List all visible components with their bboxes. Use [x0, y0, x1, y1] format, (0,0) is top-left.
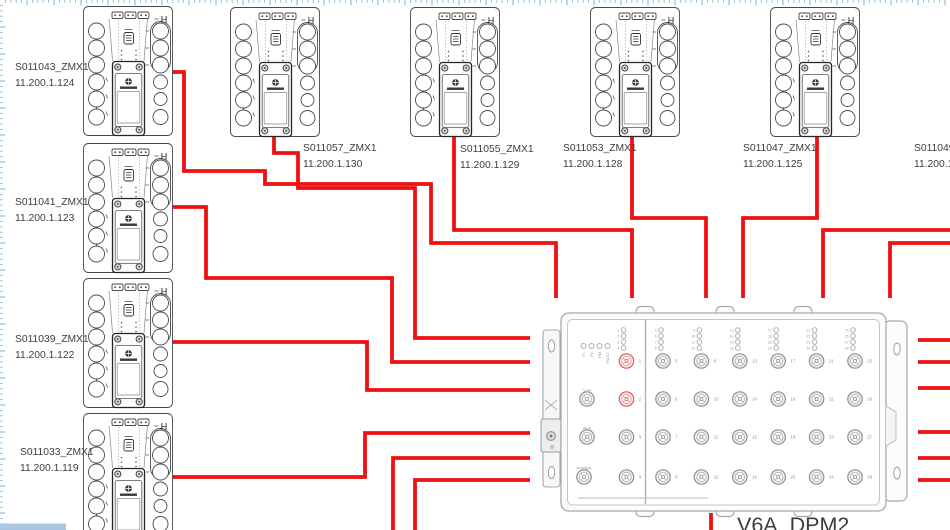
svg-text:24: 24 — [806, 346, 810, 350]
svg-text:15: 15 — [752, 435, 757, 440]
label-s011053-name[interactable]: S011053_ZMX1 — [563, 143, 637, 154]
svg-text:FAULT: FAULT — [606, 351, 610, 363]
svg-text:12: 12 — [714, 475, 719, 480]
svg-text:1: 1 — [617, 328, 619, 332]
port-23[interactable] — [809, 430, 823, 444]
port-17[interactable] — [771, 354, 785, 368]
port-9[interactable] — [694, 354, 708, 368]
top-ruler — [5, 0, 945, 5]
port-20[interactable] — [771, 470, 785, 484]
device-s011041[interactable] — [84, 144, 173, 273]
port-8[interactable] — [656, 470, 670, 484]
svg-text:4: 4 — [617, 346, 619, 350]
port-13[interactable] — [733, 354, 747, 368]
left-ruler — [0, 5, 5, 529]
svg-text:25: 25 — [867, 359, 872, 364]
label-s011055-name[interactable]: S011055_ZMX1 — [460, 144, 534, 155]
svg-text:7: 7 — [655, 340, 657, 344]
svg-text:10: 10 — [691, 334, 695, 338]
dpm-left-bracket — [541, 330, 561, 487]
wire-bottom-b-to-dpm[interactable] — [415, 480, 530, 530]
aux-port[interactable] — [580, 392, 594, 406]
label-s011043-name[interactable]: S011043_ZMX1 — [15, 62, 89, 73]
svg-text:13: 13 — [752, 359, 757, 364]
label-s011039-ip[interactable]: 11.200.1.122 — [15, 350, 75, 361]
svg-text:23: 23 — [806, 340, 810, 344]
wire-right-b-to-dpm[interactable] — [890, 243, 950, 298]
svg-text:19: 19 — [768, 340, 772, 344]
label-s011047-name[interactable]: S011047_ZMX1 — [743, 143, 817, 154]
svg-text:28: 28 — [867, 475, 872, 480]
label-s011041-ip[interactable]: 11.200.1.123 — [15, 213, 75, 224]
port-10[interactable] — [694, 392, 708, 406]
label-s011049-name[interactable]: S011049 — [914, 143, 950, 154]
label-dpm-name[interactable]: V6A_DPM2 — [737, 513, 849, 530]
label-s011055-ip[interactable]: 11.200.1.129 — [460, 160, 520, 171]
label-s011057-name[interactable]: S011057_ZMX1 — [303, 143, 377, 154]
aux-port[interactable] — [580, 430, 594, 444]
svg-text:P2: P2 — [590, 352, 594, 357]
svg-text:11: 11 — [691, 340, 695, 344]
svg-text:26: 26 — [845, 334, 849, 338]
svg-text:21: 21 — [806, 328, 810, 332]
svg-text:2: 2 — [617, 334, 619, 338]
port-25[interactable] — [848, 354, 862, 368]
device-s011053[interactable] — [591, 8, 680, 137]
svg-text:27: 27 — [845, 340, 849, 344]
device-s011047[interactable] — [771, 8, 860, 137]
device-s011055[interactable] — [411, 8, 500, 137]
port-5[interactable] — [656, 354, 670, 368]
port-7[interactable] — [656, 430, 670, 444]
label-s011033-name[interactable]: S011033_ZMX1 — [20, 447, 94, 458]
svg-text:17: 17 — [791, 359, 796, 364]
label-s011057-ip[interactable]: 11.200.1.130 — [303, 159, 363, 170]
svg-text:19: 19 — [791, 435, 796, 440]
label-s011039-name[interactable]: S011039_ZMX1 — [15, 334, 89, 345]
port-24[interactable] — [809, 470, 823, 484]
svg-text:9: 9 — [693, 328, 695, 332]
device-s011057[interactable] — [231, 8, 320, 137]
svg-text:11: 11 — [714, 435, 719, 440]
svg-text:13: 13 — [730, 328, 734, 332]
label-s011033-ip[interactable]: 11.200.1.119 — [20, 463, 79, 474]
svg-text:16: 16 — [730, 346, 734, 350]
wire-right-a-to-dpm[interactable] — [823, 230, 950, 298]
port-12[interactable] — [694, 470, 708, 484]
svg-text:22: 22 — [806, 334, 810, 338]
svg-text:16: 16 — [752, 475, 757, 480]
svg-text:28: 28 — [845, 346, 849, 350]
svg-text:26: 26 — [867, 397, 872, 402]
port-14[interactable] — [733, 392, 747, 406]
label-s011041-name[interactable]: S011041_ZMX1 — [15, 197, 89, 208]
dpm-side-notch — [886, 406, 896, 446]
wire-s011039-to-dpm[interactable] — [172, 342, 530, 390]
svg-text:3: 3 — [617, 340, 619, 344]
port-27[interactable] — [848, 430, 862, 444]
svg-text:22: 22 — [829, 397, 834, 402]
label-s011049-ip[interactable]: 11.200.1 — [914, 159, 950, 170]
svg-text:15: 15 — [730, 340, 734, 344]
port-19[interactable] — [771, 430, 785, 444]
label-s011047-ip[interactable]: 11.200.1.125 — [743, 159, 803, 170]
device-s011039[interactable] — [84, 279, 173, 408]
wire-s011033-to-dpm[interactable] — [172, 433, 530, 477]
port-18[interactable] — [771, 392, 785, 406]
label-s011053-ip[interactable]: 11.200.1.128 — [563, 159, 623, 170]
svg-text:23: 23 — [829, 435, 834, 440]
svg-text:18: 18 — [791, 397, 796, 402]
port-28[interactable] — [848, 470, 862, 484]
port-4[interactable] — [619, 470, 633, 484]
port-22[interactable] — [809, 392, 823, 406]
svg-text:17: 17 — [768, 328, 772, 332]
svg-text:25: 25 — [845, 328, 849, 332]
port-21[interactable] — [809, 354, 823, 368]
svg-text:27: 27 — [867, 435, 872, 440]
device-s011033[interactable] — [84, 414, 173, 530]
aux-port[interactable] — [577, 470, 591, 484]
svg-text:RM: RM — [598, 352, 602, 358]
port-2[interactable] — [619, 392, 633, 406]
port-26[interactable] — [848, 392, 862, 406]
svg-text:20: 20 — [791, 475, 796, 480]
svg-text:20: 20 — [768, 346, 772, 350]
port-16[interactable] — [733, 470, 747, 484]
device-s011043[interactable] — [84, 7, 173, 136]
svg-text:24: 24 — [829, 475, 834, 480]
svg-text:P1: P1 — [582, 352, 586, 357]
svg-text:10: 10 — [714, 397, 719, 402]
svg-text:6: 6 — [655, 334, 657, 338]
port-3[interactable] — [619, 430, 633, 444]
port-1[interactable] — [619, 354, 633, 368]
port-11[interactable] — [694, 430, 708, 444]
svg-text:5: 5 — [655, 328, 657, 332]
svg-text:14: 14 — [730, 334, 734, 338]
svg-text:18: 18 — [768, 334, 772, 338]
wire-s011055-to-dpm[interactable] — [454, 133, 632, 298]
label-s011043-ip[interactable]: 11.200.1.124 — [15, 78, 75, 89]
dpm-unit[interactable]: P1P2RMFAULT12341234V.24ACAPOWER567856789… — [541, 307, 907, 517]
svg-text:14: 14 — [752, 397, 757, 402]
diagram-canvas[interactable]: H — [0, 0, 950, 530]
port-15[interactable] — [733, 430, 747, 444]
wire-s011047-to-dpm[interactable] — [743, 133, 817, 298]
wire-s011053-to-dpm[interactable] — [632, 133, 706, 298]
svg-text:12: 12 — [691, 346, 695, 350]
horizontal-scrollbar[interactable] — [0, 524, 66, 530]
port-6[interactable] — [656, 392, 670, 406]
svg-text:21: 21 — [829, 359, 834, 364]
svg-text:8: 8 — [655, 346, 657, 350]
